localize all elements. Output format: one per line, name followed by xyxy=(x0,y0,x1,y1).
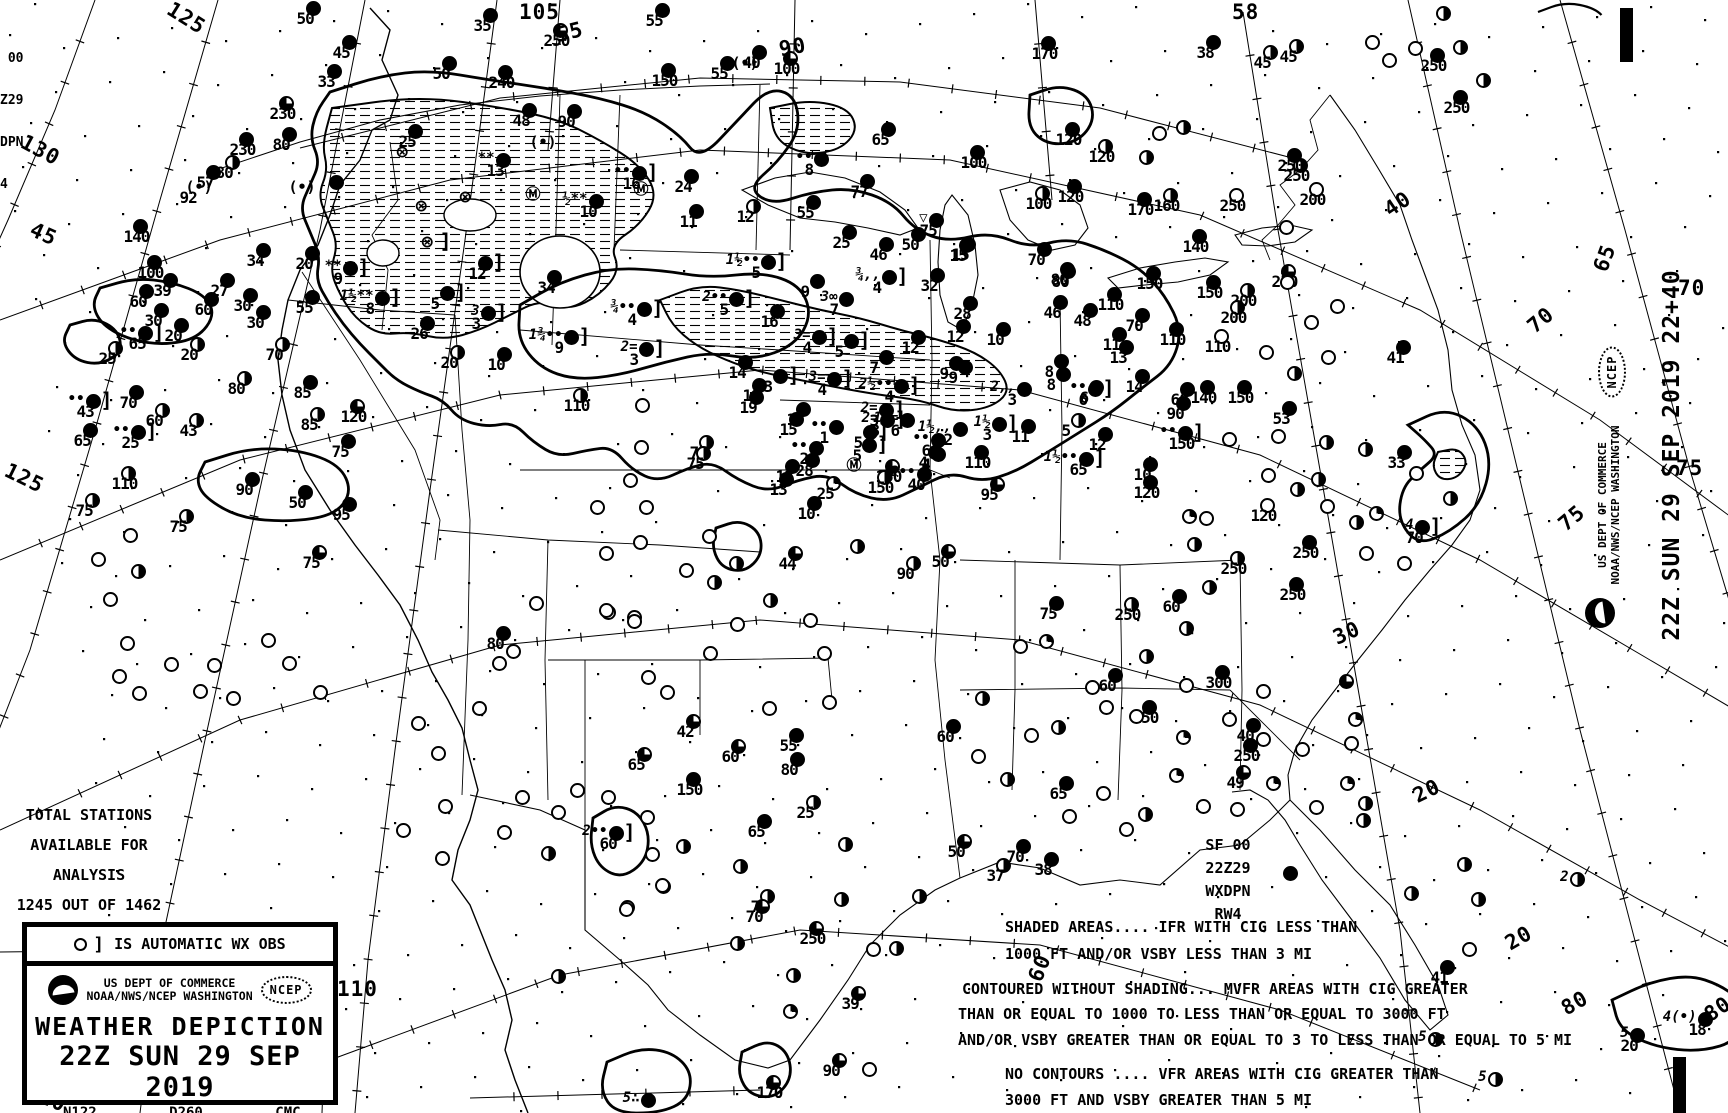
station-ceiling-value: 50 xyxy=(932,552,949,571)
station-circle-icon xyxy=(912,889,927,904)
station-plot xyxy=(529,596,544,611)
station-plot xyxy=(1287,366,1302,381)
auto-obs-bracket: ] xyxy=(101,388,113,412)
station-plot: 250 xyxy=(1124,597,1139,612)
clear-station-icon: (•) xyxy=(732,54,759,72)
station-circle-icon xyxy=(1488,1072,1503,1087)
station-plot: 5 xyxy=(1071,413,1086,428)
station-plot xyxy=(639,500,654,515)
station-ceiling-value: 170 xyxy=(1032,44,1058,63)
station-plot xyxy=(431,746,446,761)
station-plot xyxy=(627,614,642,629)
noaa-logo-icon xyxy=(48,975,78,1005)
station-ceiling-value: 250 xyxy=(1421,56,1447,75)
auto-obs-bracket: ] xyxy=(1430,514,1442,538)
station-circle-icon xyxy=(639,500,654,515)
station-plot: 250 xyxy=(1289,577,1304,592)
station-plot: 100 xyxy=(970,145,985,160)
station-ceiling-value: 11 xyxy=(1012,427,1029,446)
graticule-label: 90 xyxy=(777,33,808,61)
station-plot xyxy=(660,685,675,700)
station-ceiling-value: 25 xyxy=(797,803,814,822)
total-stations-line: 1245 OUT OF 1462 xyxy=(0,890,178,920)
station-plot: 9 xyxy=(810,274,825,289)
station-ceiling-value: 3 xyxy=(983,425,992,444)
station-circle-icon xyxy=(619,902,634,917)
station-circle-icon xyxy=(894,379,909,394)
station-ceiling-value: 13 xyxy=(487,161,504,180)
missing-data-icon: Ⓜ xyxy=(526,183,541,204)
station-plot xyxy=(912,889,927,904)
station-plot: 80 xyxy=(1061,264,1076,279)
station-plot: ½**10 xyxy=(589,194,604,209)
station-ceiling-value: 8 xyxy=(805,160,814,179)
station-plot: 85 xyxy=(303,375,318,390)
station-ceiling-value: 4 xyxy=(818,380,827,399)
station-circle-icon xyxy=(635,398,650,413)
station-plot: 34 xyxy=(547,270,562,285)
vertical-agency-line2: NOAA/NWS/NCEP WASHINGTON xyxy=(1609,426,1622,585)
station-plot: 7 xyxy=(879,350,894,365)
station-plot xyxy=(889,941,904,956)
station-plot: 110 xyxy=(1214,329,1229,344)
station-plot: 250 xyxy=(1230,551,1245,566)
station-circle-icon xyxy=(1179,621,1194,636)
legend-text-line: THAN OR EQUAL TO 1000 TO LESS THAN OR EQ… xyxy=(958,1005,1446,1023)
station-plot xyxy=(1222,712,1237,727)
footer-cmc: CMC. xyxy=(275,1105,309,1113)
station-plot: 60 xyxy=(946,719,961,734)
station-plot: 39 xyxy=(163,273,178,288)
station-plot: 50 xyxy=(306,1,321,16)
station-weather-prefix: 2 xyxy=(1560,869,1568,885)
station-plot: 25 xyxy=(806,795,821,810)
ncep-logo-icon: NCEP xyxy=(261,976,312,1004)
station-plot: ⊗ xyxy=(419,199,434,214)
station-circle-icon xyxy=(123,528,138,543)
station-ceiling-value: 140 xyxy=(124,227,150,246)
corner-id-line: Z29 xyxy=(0,94,31,108)
station-plot xyxy=(1000,772,1015,787)
station-plot xyxy=(1039,634,1054,649)
station-ceiling-value: 9 xyxy=(801,282,810,301)
station-plot xyxy=(1340,776,1355,791)
station-plot: 14 xyxy=(738,355,753,370)
station-circle-icon xyxy=(329,175,344,190)
station-ceiling-value: 50 xyxy=(902,235,919,254)
station-ceiling-value: 8 xyxy=(1047,375,1056,394)
station-circle-icon xyxy=(1051,720,1066,735)
station-ceiling-value: 37 xyxy=(987,866,1004,885)
station-plot: 8 xyxy=(1056,367,1071,382)
station-circle-icon xyxy=(1176,730,1191,745)
vertical-noaa-logo-icon xyxy=(1585,598,1619,628)
station-plot: 1½**]8 xyxy=(375,291,390,306)
station-plot xyxy=(1330,299,1345,314)
station-circle-icon xyxy=(703,646,718,661)
station-circle-icon xyxy=(1179,678,1194,693)
station-plot xyxy=(1344,736,1359,751)
sky-obscured-icon: ⊗ xyxy=(397,141,408,163)
station-plot: 95 xyxy=(342,497,357,512)
sky-obscured-icon: ⊗ xyxy=(422,231,433,253)
station-circle-icon xyxy=(601,790,616,805)
station-plot: ]12 xyxy=(478,256,493,271)
station-ceiling-value: 95 xyxy=(981,485,998,504)
station-plot xyxy=(1169,768,1184,783)
station-plot: 1½]3 xyxy=(992,417,1007,432)
station-plot: 44 xyxy=(788,546,803,561)
station-plot xyxy=(164,657,179,672)
station-ceiling-value: 75 xyxy=(1040,604,1057,623)
station-circle-icon xyxy=(829,420,844,435)
station-circle-icon xyxy=(850,539,865,554)
station-plot: 60 xyxy=(139,284,154,299)
station-plot xyxy=(635,398,650,413)
station-circle-icon xyxy=(992,417,1007,432)
station-plot: 25 xyxy=(108,341,123,356)
station-plot: 1¾••]9 xyxy=(564,330,579,345)
station-ceiling-value: 48 xyxy=(1074,311,1091,330)
station-ceiling-value: 65 xyxy=(74,431,91,450)
station-ceiling-value: 75 xyxy=(76,501,93,520)
station-plot: 80 xyxy=(225,155,240,170)
footer-d260: D260 xyxy=(169,1105,203,1113)
station-plot: 45 xyxy=(1289,39,1304,54)
station-circle-icon xyxy=(953,422,968,437)
station-plot xyxy=(1085,680,1100,695)
station-plot: 13 xyxy=(1119,340,1134,355)
station-plot: 50 xyxy=(911,227,926,242)
station-ceiling-value: 240 xyxy=(489,73,515,92)
station-plot: 3]3 xyxy=(481,306,496,321)
station-plot: 70 xyxy=(275,337,290,352)
station-plot: 65 xyxy=(757,814,772,829)
station-circle-icon xyxy=(882,270,897,285)
station-circle-icon xyxy=(1348,712,1363,727)
station-plot: 150 xyxy=(1237,380,1252,395)
station-plot: ]5 xyxy=(844,334,859,349)
station-circle-icon xyxy=(645,847,660,862)
station-circle-icon xyxy=(889,941,904,956)
graticule-label: 105 xyxy=(519,0,560,24)
station-ceiling-value: 85 xyxy=(294,383,311,402)
station-ceiling-value: 90 xyxy=(897,564,914,583)
station-ceiling-value: 25 xyxy=(833,233,850,252)
station-plot: 120 xyxy=(1067,179,1082,194)
station-ceiling-value: 43 xyxy=(77,402,94,421)
station-ceiling-value: 20 xyxy=(1621,1036,1638,1055)
auto-obs-bracket: ] xyxy=(1103,376,1115,400)
station-circle-icon xyxy=(440,286,455,301)
total-stations-line: TOTAL STATIONS xyxy=(0,800,178,830)
station-ceiling-value: 70 xyxy=(266,345,283,364)
station-plot: 150 xyxy=(877,470,892,485)
station-plot: 15 xyxy=(961,237,976,252)
station-plot xyxy=(226,691,241,706)
station-plot: 10 xyxy=(807,496,822,511)
station-plot: 34 xyxy=(256,243,271,258)
station-ceiling-value: 9 xyxy=(334,269,343,288)
auto-obs-bracket: ] xyxy=(788,363,800,387)
station-plot: 110 xyxy=(1107,287,1122,302)
vertical-agency-text: US DEPT OF COMMERCE NOAA/NWS/NCEP WASHIN… xyxy=(1596,426,1622,585)
station-circle-icon xyxy=(1295,742,1310,757)
station-circle-icon xyxy=(1365,35,1380,50)
product-id-block: SF 00 22Z29 WXDPN RW4 xyxy=(1198,834,1258,926)
station-plot: 140 xyxy=(133,219,148,234)
station-circle-icon xyxy=(834,892,849,907)
station-ceiling-value: 65 xyxy=(628,755,645,774)
station-circle-icon xyxy=(1339,674,1354,689)
station-plot xyxy=(971,749,986,764)
station-plot: 75 xyxy=(85,493,100,508)
station-plot: 120 xyxy=(1260,498,1275,513)
station-plot xyxy=(1222,432,1237,447)
auto-obs-bracket: ] xyxy=(440,229,452,253)
station-ceiling-value: 5 xyxy=(752,263,761,282)
station-plot: 80 xyxy=(790,752,805,767)
station-plot xyxy=(786,968,801,983)
station-plot xyxy=(1259,345,1274,360)
auto-obs-bracket: ] xyxy=(390,285,402,309)
station-plot: ••1 xyxy=(829,420,844,435)
agency-line2: NOAA/NWS/NCEP WASHINGTON xyxy=(86,989,252,1003)
registration-mark-top-right xyxy=(1620,8,1633,62)
station-plot: 28 xyxy=(963,296,978,311)
station-circle-icon xyxy=(1138,807,1153,822)
station-ceiling-value: 70 xyxy=(1126,316,1143,335)
station-circle-icon xyxy=(472,701,487,716)
station-ceiling-value: 65 xyxy=(748,822,765,841)
station-plot: 240 xyxy=(498,65,513,80)
station-plot: 150 xyxy=(661,63,676,78)
station-plot xyxy=(975,691,990,706)
station-plot: 70 xyxy=(1037,242,1052,257)
station-plot: 42 xyxy=(686,714,701,729)
station-ceiling-value: 80 xyxy=(781,760,798,779)
station-plot xyxy=(1320,499,1335,514)
station-plot xyxy=(763,593,778,608)
station-plot: 150 xyxy=(1146,266,1161,281)
station-plot: 28 xyxy=(805,453,820,468)
station-plot: ••8 xyxy=(814,152,829,167)
station-plot: 15 xyxy=(789,412,804,427)
station-ceiling-value: 60 xyxy=(130,292,147,311)
station-plot: 100 xyxy=(1035,186,1050,201)
station-ceiling-value: 60 xyxy=(1099,676,1116,695)
station-plot xyxy=(599,546,614,561)
auto-obs-bracket: ] xyxy=(455,280,467,304)
station-ceiling-value: 300 xyxy=(1206,673,1232,692)
station-ceiling-value: 120 xyxy=(1251,506,1277,525)
station-plot: 46 xyxy=(1053,295,1068,310)
station-ceiling-value: 9 xyxy=(949,368,958,387)
station-plot xyxy=(1230,802,1245,817)
station-circle-icon xyxy=(431,746,446,761)
station-circle-icon xyxy=(1071,413,1086,428)
station-plot xyxy=(1356,813,1371,828)
station-ceiling-value: 75 xyxy=(170,517,187,536)
station-plot xyxy=(1408,41,1423,56)
auto-obs-note: IS AUTOMATIC WX OBS xyxy=(114,935,286,953)
station-plot: 2••]60 xyxy=(609,826,624,841)
station-plot: 75 xyxy=(1049,596,1064,611)
station-plot: 48 xyxy=(1083,303,1098,318)
station-ceiling-value: 250 xyxy=(800,929,826,948)
station-ceiling-value: 75 xyxy=(687,454,704,473)
station-plot: 33 xyxy=(327,64,342,79)
station-circle-icon xyxy=(786,968,801,983)
station-ceiling-value: 90 xyxy=(558,112,575,131)
station-circle-icon xyxy=(1222,712,1237,727)
station-ceiling-value: 150 xyxy=(677,780,703,799)
station-ceiling-value: 20 xyxy=(165,326,182,345)
auto-obs-bracket: ] xyxy=(654,336,666,360)
station-ceiling-value: 16 xyxy=(623,174,640,193)
station-ceiling-value: 80 xyxy=(487,634,504,653)
station-ceiling-value: 7 xyxy=(830,300,839,319)
station-plot: 75 xyxy=(179,509,194,524)
station-ceiling-value: 75 xyxy=(332,442,349,461)
station-ceiling-value: 25 xyxy=(122,433,139,452)
station-ceiling-value: 70 xyxy=(1406,528,1423,547)
station-plot xyxy=(590,500,605,515)
station-plot xyxy=(193,684,208,699)
station-plot xyxy=(551,969,566,984)
clear-station-icon: (•) xyxy=(289,178,316,196)
station-plot: 12 xyxy=(746,199,761,214)
station-plot xyxy=(123,528,138,543)
station-ceiling-value: 250 xyxy=(1293,543,1319,562)
station-plot: 41 xyxy=(1440,960,1455,975)
station-ceiling-value: 230 xyxy=(270,104,296,123)
station-ceiling-value: 70 xyxy=(1028,250,1045,269)
station-plot xyxy=(207,658,222,673)
station-circle-icon xyxy=(396,823,411,838)
station-plot: 65 xyxy=(881,122,896,137)
station-plot: 45 xyxy=(1263,45,1278,60)
station-plot xyxy=(641,670,656,685)
station-plot xyxy=(261,633,276,648)
station-plot: 10 xyxy=(497,347,512,362)
station-ceiling-value: 77 xyxy=(851,182,868,201)
station-ceiling-value: 4 xyxy=(628,310,637,329)
station-circle-icon xyxy=(1271,429,1286,444)
station-plot: 85 xyxy=(310,407,325,422)
station-plot xyxy=(601,790,616,805)
station-plot xyxy=(313,685,328,700)
station-plot: 520 xyxy=(1630,1028,1645,1043)
station-plot: (•) xyxy=(735,56,750,71)
station-plot xyxy=(1119,822,1134,837)
ncep-logo-text: NCEP xyxy=(1598,347,1626,398)
station-ceiling-value: 120 xyxy=(1089,147,1115,166)
station-plot: Ⓜ xyxy=(529,187,544,202)
station-plot: 53 xyxy=(1282,401,1297,416)
total-stations-line: AVAILABLE FOR xyxy=(0,830,178,860)
station-plot: 60 xyxy=(204,292,219,307)
station-plot: 48 xyxy=(522,103,537,118)
station-plot xyxy=(599,603,614,618)
station-plot: 70 xyxy=(1016,839,1031,854)
station-circle-icon xyxy=(1397,556,1412,571)
station-ceiling-value: 3 xyxy=(630,350,639,369)
station-ceiling-value: 80 xyxy=(1052,272,1069,291)
station-ceiling-value: 1 xyxy=(820,428,829,447)
station-plot: ▽75 xyxy=(929,213,944,228)
station-circle-icon xyxy=(120,636,135,651)
station-plot: 19 xyxy=(749,390,764,405)
station-circle-icon xyxy=(282,656,297,671)
station-circle-icon xyxy=(1309,800,1324,815)
station-ceiling-value: 38 xyxy=(1035,860,1052,879)
station-plot xyxy=(1404,886,1419,901)
station-ceiling-value: 10 xyxy=(798,504,815,523)
station-circle-icon xyxy=(435,851,450,866)
station-plot: 3=]4 xyxy=(827,372,842,387)
station-circle-icon xyxy=(112,669,127,684)
station-circle-icon xyxy=(515,790,530,805)
station-circle-icon xyxy=(103,592,118,607)
auto-obs-bracket: ] xyxy=(909,373,921,397)
station-plot: 5∴ xyxy=(641,1093,656,1108)
station-circle-icon xyxy=(590,500,605,515)
station-plot xyxy=(1176,730,1191,745)
station-ceiling-value: 100 xyxy=(1026,194,1052,213)
station-circle-icon xyxy=(1085,680,1100,695)
sky-obscured-icon: ⊗ xyxy=(416,195,427,217)
station-ceiling-value: 250 xyxy=(1220,196,1246,215)
station-circle-icon xyxy=(707,575,722,590)
station-ceiling-value: 110 xyxy=(1205,337,1231,356)
station-ceiling-value: 55 xyxy=(296,298,313,317)
station-ceiling-value: 41 xyxy=(1387,348,1404,367)
station-plot: 200 xyxy=(1230,300,1245,315)
station-ceiling-value: 70 xyxy=(120,393,137,412)
station-ceiling-value: 14 xyxy=(729,363,746,382)
station-ceiling-value: 48 xyxy=(513,111,530,130)
station-ceiling-value: 60 xyxy=(1163,597,1180,616)
station-ceiling-value: 120 xyxy=(341,407,367,426)
auto-obs-bracket: ] xyxy=(496,300,508,324)
station-ceiling-value: 120 xyxy=(1058,187,1084,206)
station-plot: 90 xyxy=(567,104,582,119)
station-plot xyxy=(850,539,865,554)
station-circle-icon xyxy=(541,846,556,861)
station-ceiling-value: 50 xyxy=(433,64,450,83)
station-circle-icon xyxy=(1436,6,1451,21)
station-circle-icon xyxy=(1169,768,1184,783)
station-circle-icon xyxy=(660,685,675,700)
station-ceiling-value: 19 xyxy=(740,398,757,417)
station-plot: 12 xyxy=(1098,427,1113,442)
station-plot xyxy=(1283,866,1298,881)
station-plot: 27 xyxy=(220,273,235,288)
station-plot: 200 xyxy=(1240,283,1255,298)
station-ceiling-value: 13 xyxy=(1110,348,1127,367)
station-ceiling-value: 110 xyxy=(1160,330,1186,349)
product-title: WEATHER DEPICTION xyxy=(27,1012,333,1041)
station-circle-icon xyxy=(1330,299,1345,314)
station-plot: 33 xyxy=(1397,445,1412,460)
station-plot: 49 xyxy=(1236,765,1251,780)
station-plot: 41 xyxy=(1396,340,1411,355)
station-circle-icon xyxy=(132,686,147,701)
legend-text-line: CONTOURED WITHOUT SHADING... MVFR AREAS … xyxy=(962,980,1468,998)
station-plot xyxy=(707,575,722,590)
auto-obs-bracket: ] xyxy=(652,296,664,320)
